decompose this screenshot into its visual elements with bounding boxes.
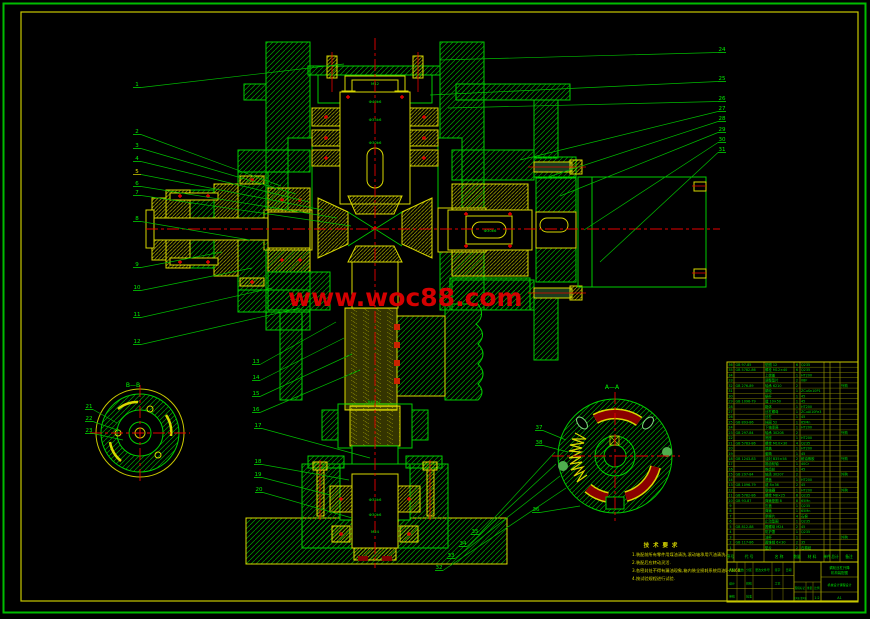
bom-cell-qty: 1 [796,426,798,430]
part-balloon: 27 [719,106,726,112]
bom-cell-no: 36 [728,363,732,367]
bom-cell-material: 35 [801,541,805,545]
bom-cell-qty: 1 [796,394,798,398]
part-balloon: 23 [86,428,93,434]
titleblock-paper: A1 [837,596,841,600]
leader-line [479,452,555,535]
bom-cell-name: 垫片 [765,545,772,550]
bom-cell-no: 33 [728,379,732,383]
bom-cell-no: 4 [729,530,731,534]
bom-cell-no: 32 [728,384,732,388]
bom-cell-qty: 2 [796,483,798,487]
bom-cell-no: 14 [728,478,732,482]
bom-cell-name: 弹簧 [765,508,772,513]
dimension-label: M24 [371,529,380,534]
bom-header: 备注 [845,554,853,559]
bom-cell-name: 键 8×36 [765,482,779,487]
bom-cell-name: 丝杠螺母 [765,409,779,414]
leader-line [545,122,718,179]
bom-cell-no: 25 [728,421,732,425]
part-balloon: 10 [134,285,141,291]
bom-cell-material: Q235 [801,441,810,445]
titleblock-cell: 标记 [729,567,735,572]
bom-cell-material: 45 [801,525,805,529]
bom-cell-name: 锥齿轮轴 [765,461,779,466]
bom-cell-material: HT200 [801,478,812,482]
bom-cell-qty: 2 [796,431,798,435]
bom-cell-no: 6 [729,520,731,524]
bom-cell-qty: 2 [796,546,798,550]
bom-cell-no: 30 [728,394,732,398]
bom-cell-qty: 2 [796,525,798,529]
bom-cell-material: 45 [801,483,805,487]
bom-cell-remark: 外购 [841,487,848,492]
bom-cell-qty: 1 [796,488,798,492]
watermark-text: www.woc88.com [288,283,523,312]
bom-cell-code: GB 276-89 [736,384,754,388]
bom-cell-no: 35 [728,368,732,372]
part-balloon: 37 [536,425,543,431]
bom-cell-name: 圆螺母 M24 [765,524,784,529]
bom-cell-code: GB 93-87 [736,499,752,503]
bom-cell-qty: 1 [796,509,798,513]
bom-cell-name: 轴承 30208 [765,430,784,435]
bom-cell-no: 31 [728,389,732,393]
bom-parts-list: 36GB 97-85垫圈 126Q23535GB 5782-86螺栓 M12×4… [727,362,858,562]
notes-item: 1.装配前所有零件用煤油清洗,滚动轴承用汽油清洗. [632,551,727,558]
titleblock-drawing-title: 蜗轮丝杠升降 [829,565,850,570]
notes-item: 2.装配后应转动灵活. [632,559,671,566]
bom-cell-name: 轴承 30207 [765,472,784,477]
part-balloon: 1 [135,82,139,88]
bom-cell-name: 摩擦片 [765,514,776,519]
bom-cell-qty: 1 [796,462,798,466]
bom-cell-code: GB 812-88 [736,525,754,529]
cad-drawing-canvas: 1234567891011121314151617181920212223242… [0,0,870,619]
bom-cell-material: HT200 [801,447,812,451]
part-balloon: 9 [135,262,139,268]
bom-cell-material: 40Cr [801,462,810,466]
bom-cell-material: 耐油橡胶 [801,456,815,461]
bom-cell-code: GB 1096-79 [736,400,756,404]
dimension-label: Ф35k6 [369,497,382,502]
bom-cell-material: 65Mn [801,509,810,513]
part-balloon: 6 [135,181,139,187]
bom-header: 数量 [793,554,801,559]
bom-cell-name: 弹簧垫圈 8 [765,498,782,503]
part-balloon: 21 [86,404,93,410]
section-label: A—A [605,384,620,391]
part-balloon: 4 [135,156,139,162]
titleblock-cell: 处数 [738,567,744,572]
bom-cell-no: 18 [728,457,732,461]
bom-cell-material: Q235 [801,363,810,367]
bom-cell-qty: 1 [796,530,798,534]
bom-cell-qty: 2 [796,384,798,388]
part-balloon: 20 [256,487,263,493]
bom-cell-qty: 8 [796,499,798,503]
bom-cell-no: 23 [728,431,732,435]
bom-cell-no: 26 [728,415,732,419]
bom-cell-qty: 2 [796,379,798,383]
bom-header: 材 料 [808,554,817,559]
dimension-label: Ф30k6 [369,512,382,517]
bom-cell-qty: 1 [796,504,798,508]
dimension-label: Ф40k6 [369,99,382,104]
part-balloon: 12 [134,339,141,345]
part-balloon: 8 [135,216,139,222]
bom-cell-qty: 4 [796,441,798,445]
bom-cell-name: 螺栓 M10×30 [765,440,787,445]
bom-cell-qty: 6 [796,363,798,367]
bom-cell-code: GB 1096-79 [736,483,756,487]
part-balloon: 25 [719,76,726,82]
bom-cell-qty: 1 [796,421,798,425]
bom-cell-qty: 1 [796,452,798,456]
bom-cell-material: 石棉纸 [801,545,812,550]
bom-cell-no: 27 [728,410,732,414]
bom-cell-code: GB 5783-86 [736,441,756,445]
bom-cell-material: Q235 [801,368,810,372]
part-balloon: 16 [253,407,260,413]
bom-cell-name: 蜗轮 [765,388,772,393]
dimension-label: M12 [371,81,380,86]
bom-cell-material: 45 [801,394,805,398]
bom-cell-remark: 外购 [841,430,848,435]
bom-cell-no: 7 [729,515,731,519]
part-balloon: 32 [436,565,443,571]
part-balloon: 26 [719,96,726,102]
bom-header: 名 称 [775,554,784,559]
part-balloon: 24 [719,47,726,53]
bom-cell-name: 防护罩 [765,529,776,534]
part-balloon: 3 [135,143,139,149]
cad-drawing-viewport: 1234567891011121314151617181920212223242… [0,0,870,619]
bom-cell-qty: 2 [796,541,798,545]
part-balloon: 34 [460,541,467,547]
titleblock-cell: 日期 [786,567,792,572]
bom-cell-name: 端盖 [765,446,772,451]
part-balloon: 31 [719,147,726,153]
bom-cell-qty: 6 [796,368,798,372]
section-label: B—B [126,382,140,389]
bom-cell-name: 圆锥销 6×30 [765,540,786,545]
part-balloon: 17 [255,423,262,429]
bom-cell-no: 20 [728,447,732,451]
bom-cell-name: 压盖 [765,503,772,508]
bom-cell-code: GB 297-84 [736,473,754,477]
bom-cell-name: 油封 B35×58 [765,456,787,461]
bom-cell-material: HT200 [801,436,812,440]
bom-cell-code: GB 893-86 [736,421,754,425]
bom-cell-material: HT200 [801,374,812,378]
notes-item: 3.各密封处不得有漏油现象,箱内装全损耗系统用油L-AN68. [632,567,742,574]
bom-cell-qty: 8 [796,494,798,498]
bom-cell-code: GB 5782-86 [736,494,756,498]
notes-item: 4.按试验规程进行试验. [632,575,675,582]
leader-line [600,153,718,263]
bom-cell-code: GB 5782-86 [736,368,756,372]
bom-cell-material: ZCuSn10P1 [801,389,821,393]
bom-cell-code: GB 1243-83 [736,457,756,461]
bom-cell-qty: 1 [796,389,798,393]
bom-cell-qty: 1 [796,400,798,404]
part-balloon: 35 [472,529,479,535]
bom-cell-material: 45 [801,400,805,404]
bom-cell-no: 5 [729,525,731,529]
bom-cell-code: GB 297-84 [736,431,754,435]
bom-cell-material: 45 [801,415,805,419]
bom-cell-no: 21 [728,441,732,445]
dimension-label: Ф30k6 [484,228,497,233]
bom-cell-material: Q235 [801,530,810,534]
bom-cell-name: 键 10×50 [765,399,781,404]
bom-cell-name: 螺栓 M8×25 [765,493,785,498]
bom-header: 代 号 [745,554,754,559]
titleblock-cell: 分区 [746,567,752,572]
titleblock-cell: 校核 [746,580,752,585]
bom-cell-name: 套筒 [765,451,772,456]
part-balloon: 13 [253,359,260,365]
bom-cell-no: 12 [728,488,732,492]
titleblock-cell: 签字 [775,567,781,572]
bom-cell-no: 2 [729,541,731,545]
bom-cell-remark: 外购 [841,472,848,477]
bom-cell-name: 下轴承座 [765,425,779,430]
bom-cell-no: 3 [729,535,731,539]
bom-header: 单件 [823,554,831,559]
bom-cell-material: 08F [801,379,807,383]
leader-line [540,506,580,513]
titleblock-cell: 审核 [729,594,735,599]
leader-line [260,354,352,397]
part-balloon: 36 [533,507,540,513]
part-balloon: 22 [86,416,93,422]
bom-cell-material: ZCuAl10Fe3 [801,410,821,414]
part-balloon: 29 [719,127,726,133]
bom-cell-name: 蜗杆 [765,393,772,398]
part-balloon: 19 [255,472,262,478]
bom-cell-material: 65Mn [801,421,810,425]
bom-cell-qty: 2 [796,457,798,461]
bom-cell-qty: 1 [796,520,798,524]
bom-cell-no: 15 [728,473,732,477]
bom-cell-name: 垫圈 12 [765,362,777,367]
bom-cell-no: 17 [728,462,732,466]
bom-cell-no: 22 [728,436,732,440]
part-balloon: 11 [134,312,141,318]
titleblock-org: 机械设计课程设计 [827,582,851,587]
part-balloon: 28 [719,116,726,122]
part-balloon: 5 [135,169,139,175]
notes-title: 技 术 要 求 [644,541,679,549]
bom-cell-qty: 1 [796,468,798,472]
bom-cell-no: 24 [728,426,732,430]
bom-cell-name: 螺栓 M12×40 [765,367,787,372]
part-balloon: 18 [255,459,262,465]
bom-cell-qty: 1 [796,478,798,482]
leader-line [448,102,718,109]
bom-cell-no: 28 [728,405,732,409]
bom-cell-name: 底座 [765,435,772,440]
bom-cell-code: GB 97-85 [736,363,752,367]
bom-cell-qty: 2 [796,473,798,477]
titleblock-drawing-title: 机构装配图 [831,570,849,575]
technical-notes: 技 术 要 求1.装配前所有零件用煤油清洗,滚动轴承用汽油清洗.2.装配后应转动… [632,541,742,582]
leader-line [141,64,344,88]
bom-cell-material: HT200 [801,426,812,430]
bom-cell-material: 45 [801,468,805,472]
bom-cell-no: 8 [729,509,731,513]
bom-cell-qty: 1 [796,374,798,378]
bom-header: 序号 [727,554,735,559]
part-balloon: 30 [719,137,726,143]
bom-cell-qty: 4 [796,515,798,519]
bom-cell-material: HT200 [801,405,812,409]
bom-cell-code: GB 117-86 [736,541,754,545]
bom-cell-name: 丝杠 [765,414,772,419]
titleblock-cell: 工艺 [775,580,781,585]
bom-cell-qty: 1 [796,535,798,539]
bom-cell-remark: 外购 [841,534,848,539]
bom-cell-name: 轴承 6210 [765,383,782,388]
bom-cell-no: 19 [728,452,732,456]
bom-cell-name: 油杯 [765,534,772,539]
bom-cell-no: 34 [728,374,732,378]
titleblock-mid-label: 比例 [814,586,820,590]
bom-cell-material: HT200 [801,488,812,492]
titleblock-cell: 设计 [729,580,735,585]
part-balloon: 14 [253,375,260,381]
bom-cell-material: 石棉 [801,514,808,519]
part-balloon: 2 [135,129,139,135]
bom-cell-name: 止动垫圈 [765,519,779,524]
bom-cell-material: 45 [801,452,805,456]
part-balloon: 15 [253,391,260,397]
bom-cell-name: 箱体 [765,404,772,409]
bom-cell-material: Q235 [801,494,810,498]
part-balloon: 33 [448,553,455,559]
bom-cell-name: 联轴器 [765,487,776,492]
bom-cell-remark: 外购 [841,383,848,388]
titleblock-mid-label: 重量 [807,586,813,590]
bom-cell-qty: 1 [796,415,798,419]
bom-cell-no: 9 [729,504,731,508]
titleblock-cell: 更改文件号 [755,567,770,572]
titleblock-sheet: 共1张 第1张 [793,596,807,600]
bom-cell-qty: 1 [796,405,798,409]
bom-cell-no: 11 [728,494,732,498]
bom-cell-remark: 外购 [841,456,848,461]
dimension-label: Tr40×7 [366,399,381,404]
part-balloon: 7 [135,190,139,196]
bom-cell-name: 透盖 [765,477,772,482]
bom-cell-name: 调整垫片 [765,378,779,383]
bom-cell-material: 65Mn [801,499,810,503]
bom-cell-no: 29 [728,400,732,404]
bom-cell-no: 10 [728,499,732,503]
dimension-label: Ф30k6 [369,140,382,145]
title-block: 标记处数分区更改文件号签字日期设计校核工艺审核批准阶段标记重量比例1:2共1张 … [727,562,858,602]
bom-cell-material: Q235 [801,520,810,524]
leader-line [467,464,556,547]
part-balloon: 38 [536,440,543,446]
bom-cell-qty: 1 [796,410,798,414]
bom-cell-qty: 1 [796,447,798,451]
titleblock-scale: 1:2 [814,596,819,600]
bom-cell-name: 锥齿轮 [765,467,776,472]
leader-line [141,268,252,291]
bom-cell-no: 13 [728,483,732,487]
bom-header: 总计 [831,554,839,559]
bom-cell-no: 1 [729,546,731,550]
titleblock-cell: 批准 [746,594,752,599]
bom-cell-name: 上端盖 [765,373,776,378]
titleblock-mid-label: 阶段标记 [795,586,806,590]
dimension-label: Ф35k6 [369,117,382,122]
bom-cell-material: Q235 [801,504,810,508]
bom-cell-no: 16 [728,468,732,472]
bom-cell-name: 挡圈 52 [765,420,777,425]
bom-cell-qty: 1 [796,436,798,440]
